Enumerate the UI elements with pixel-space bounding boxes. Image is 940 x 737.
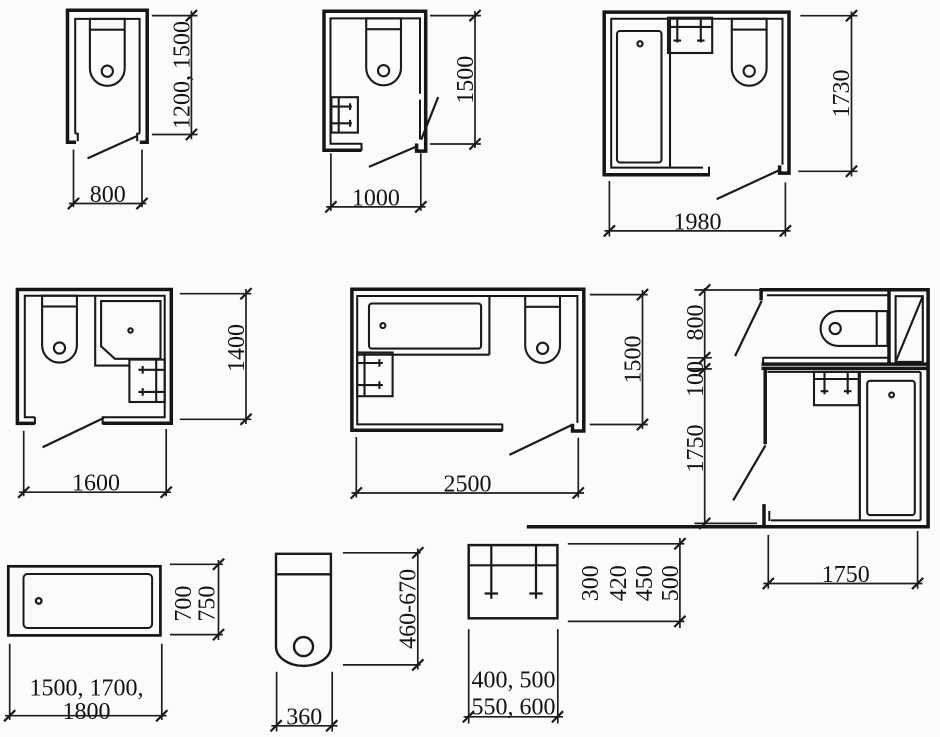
svg-text:1750: 1750 — [683, 425, 709, 473]
svg-text:800: 800 — [90, 182, 126, 208]
svg-text:360: 360 — [286, 704, 322, 730]
svg-text:300: 300 — [578, 565, 604, 601]
svg-text:1200, 1500: 1200, 1500 — [169, 21, 195, 129]
svg-text:450: 450 — [632, 565, 658, 601]
svg-text:420: 420 — [606, 565, 632, 601]
svg-text:1600: 1600 — [72, 471, 120, 497]
svg-text:1500: 1500 — [620, 336, 646, 384]
svg-text:1500: 1500 — [453, 56, 479, 104]
svg-text:100: 100 — [683, 361, 709, 397]
svg-text:1000: 1000 — [352, 185, 400, 211]
svg-text:1400: 1400 — [224, 324, 250, 372]
svg-text:1730: 1730 — [829, 70, 855, 118]
svg-text:1750: 1750 — [822, 562, 870, 588]
svg-text:750: 750 — [194, 586, 220, 622]
svg-text:2500: 2500 — [444, 472, 492, 498]
svg-text:700: 700 — [171, 586, 197, 622]
svg-text:550, 600: 550, 600 — [472, 695, 556, 721]
svg-text:800: 800 — [683, 305, 709, 341]
svg-text:500: 500 — [658, 565, 684, 601]
svg-text:1500, 1700,: 1500, 1700, — [30, 676, 144, 702]
svg-text:400, 500: 400, 500 — [472, 668, 556, 694]
svg-text:460-670: 460-670 — [396, 569, 422, 649]
svg-text:1800: 1800 — [63, 699, 111, 725]
svg-text:1980: 1980 — [674, 209, 722, 235]
